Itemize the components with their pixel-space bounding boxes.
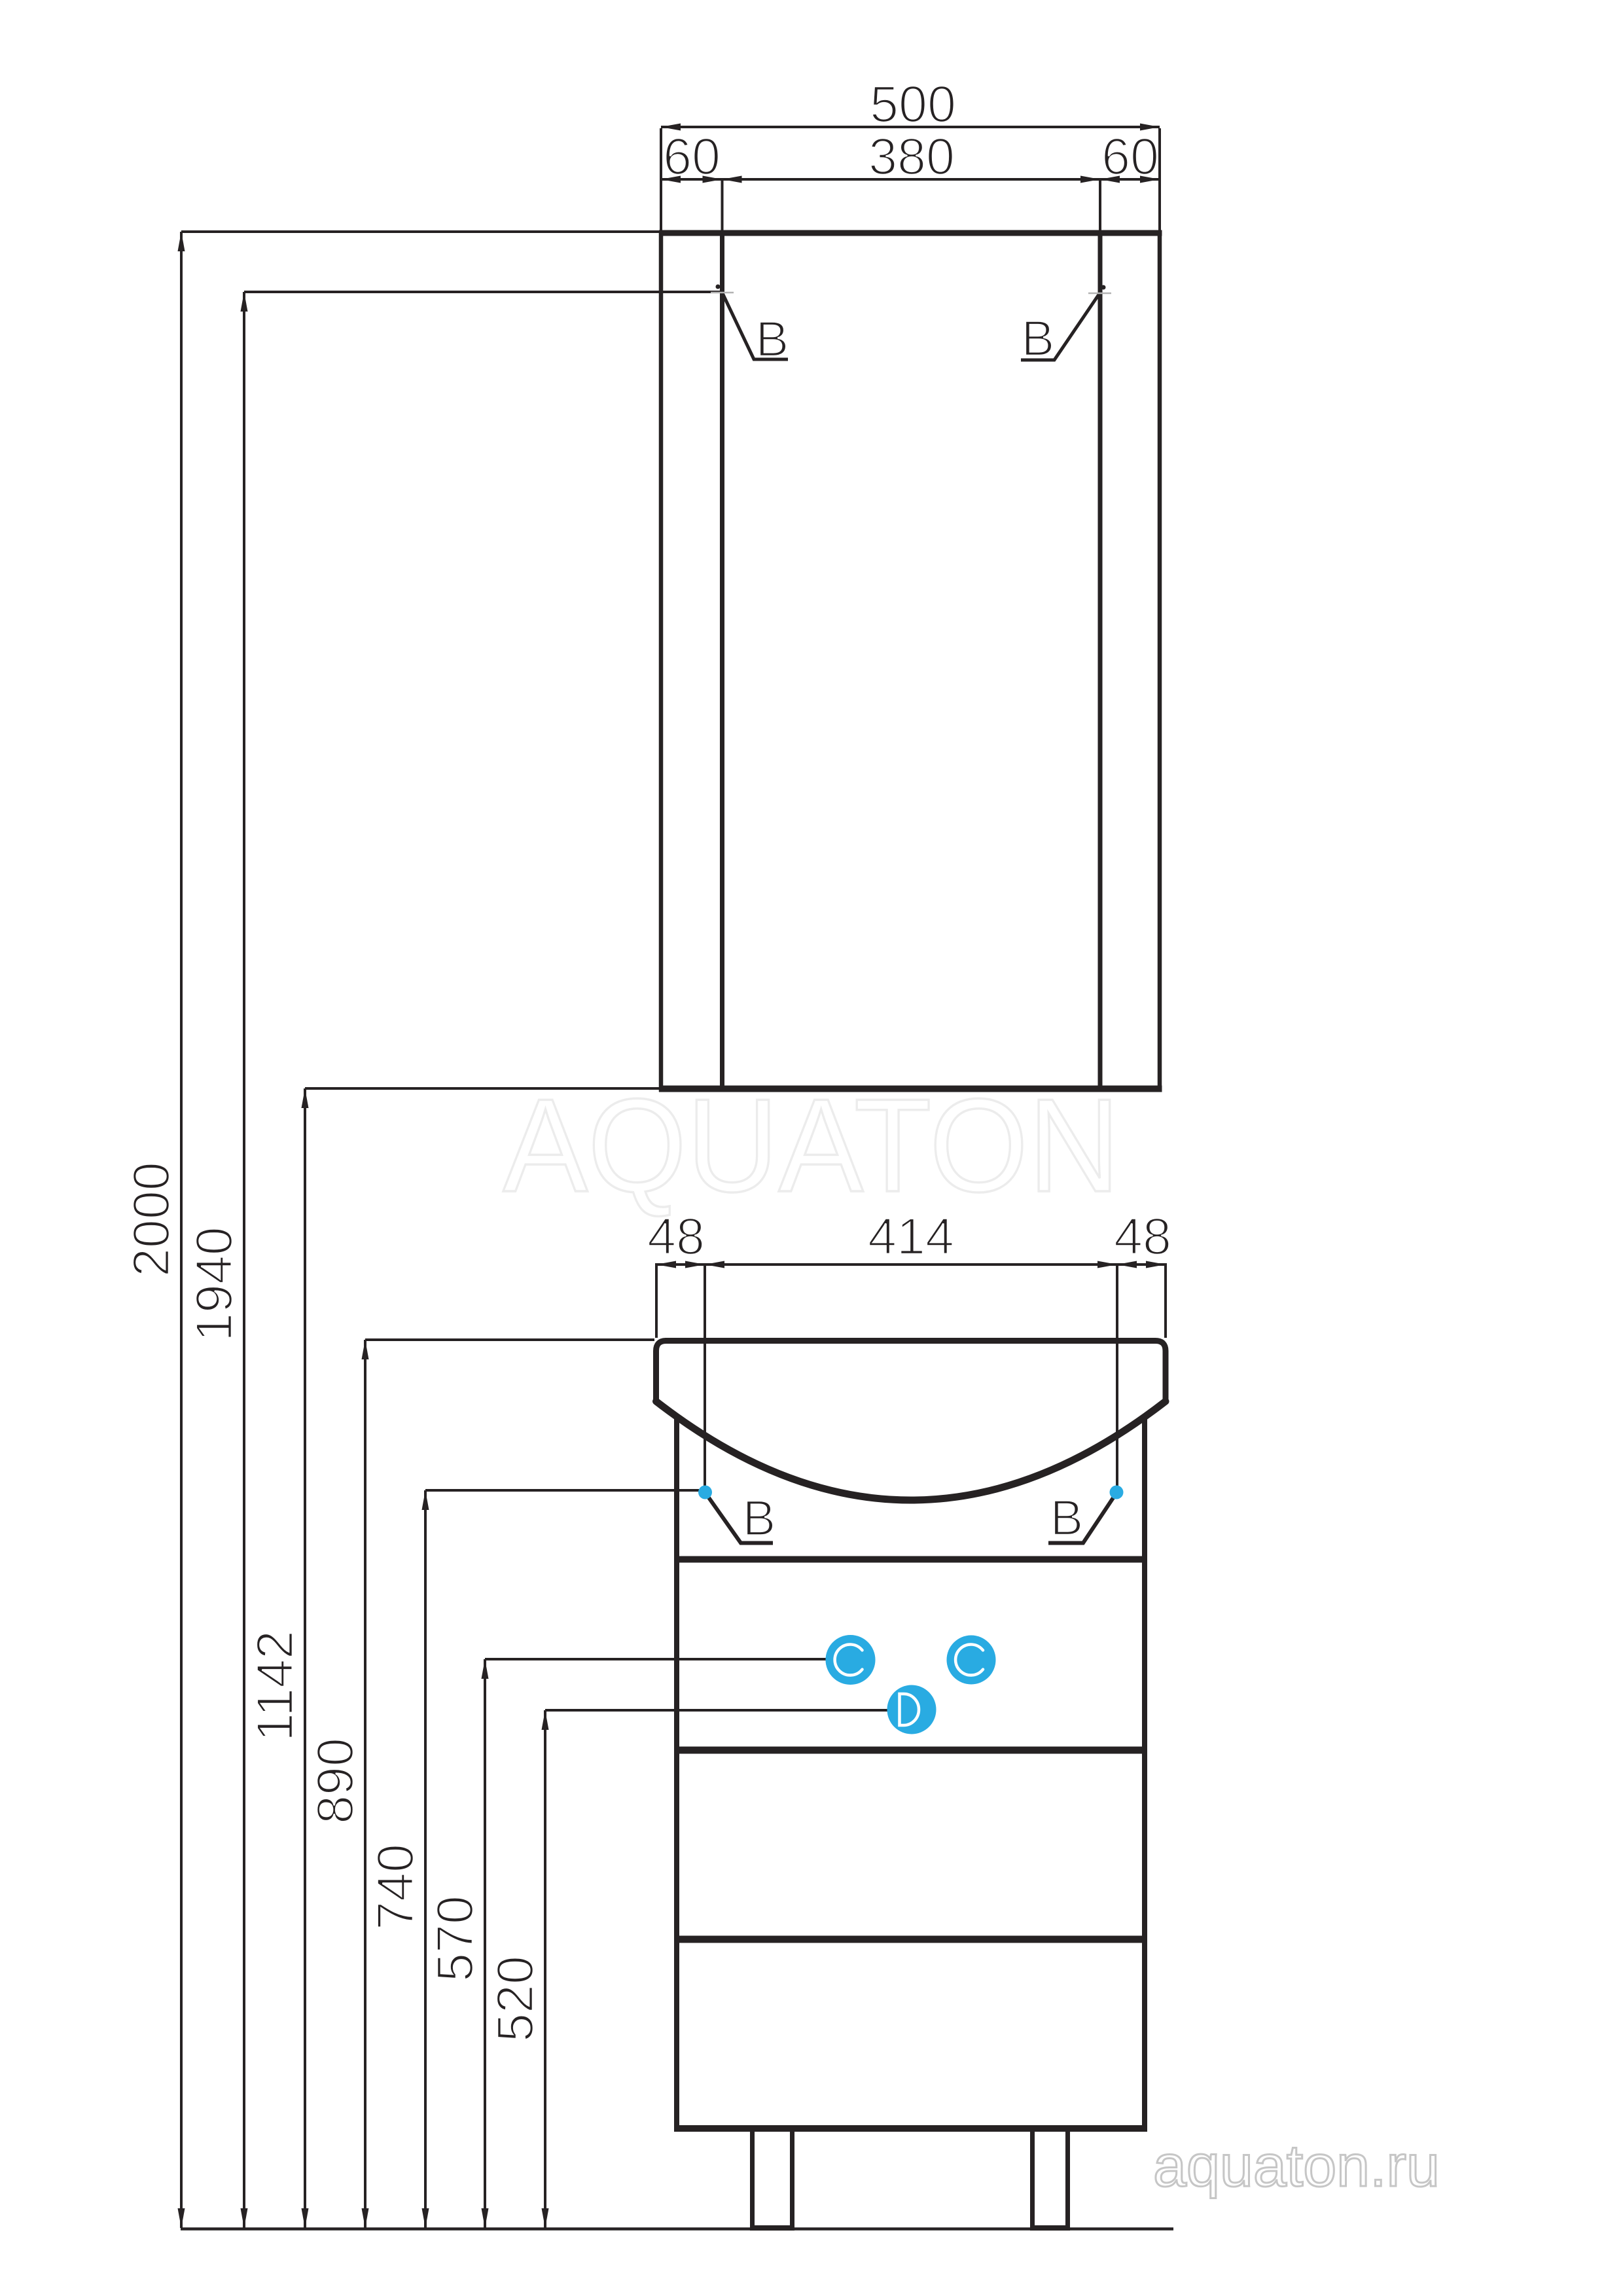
svg-text:B: B (756, 312, 789, 367)
svg-text:1940: 1940 (185, 1227, 243, 1342)
svg-text:48: 48 (1114, 1207, 1171, 1265)
svg-text:48: 48 (647, 1207, 705, 1265)
svg-text:B: B (1050, 1490, 1084, 1546)
svg-text:1142: 1142 (245, 1630, 304, 1742)
svg-text:B: B (743, 1491, 776, 1547)
svg-text:380: 380 (868, 127, 955, 185)
svg-text:890: 890 (306, 1738, 364, 1824)
svg-text:570: 570 (425, 1895, 484, 1982)
svg-text:60: 60 (1101, 127, 1159, 185)
svg-text:740: 740 (366, 1844, 424, 1930)
svg-text:520: 520 (486, 1956, 544, 2042)
svg-text:60: 60 (663, 127, 721, 185)
svg-text:B: B (1022, 311, 1055, 367)
svg-text:AQUATON: AQUATON (503, 1071, 1120, 1220)
svg-text:414: 414 (868, 1207, 954, 1265)
svg-text:aquaton.ru: aquaton.ru (1153, 2134, 1440, 2199)
svg-text:500: 500 (870, 75, 956, 133)
svg-text:2000: 2000 (122, 1162, 180, 1277)
